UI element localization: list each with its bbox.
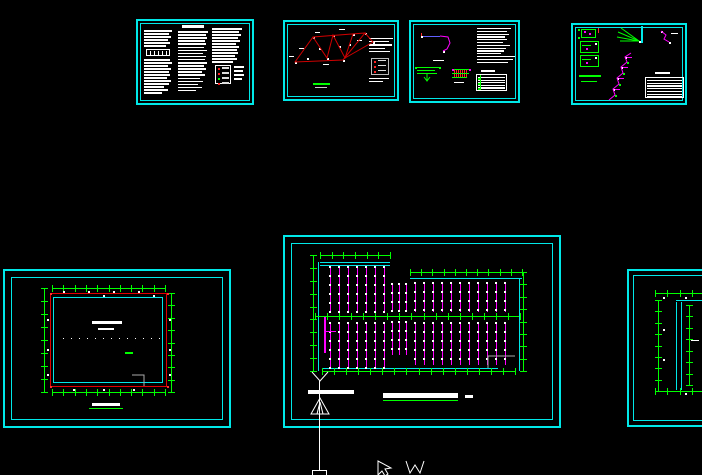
cad-canvas[interactable]: [0, 0, 702, 475]
cursor-drawing-layer: [0, 0, 702, 475]
cursor-layer: [0, 0, 702, 475]
cad-polyline: [406, 461, 424, 473]
cad-rect: [312, 470, 327, 475]
cad-polyline: [378, 461, 391, 475]
cad-line: [319, 381, 320, 471]
